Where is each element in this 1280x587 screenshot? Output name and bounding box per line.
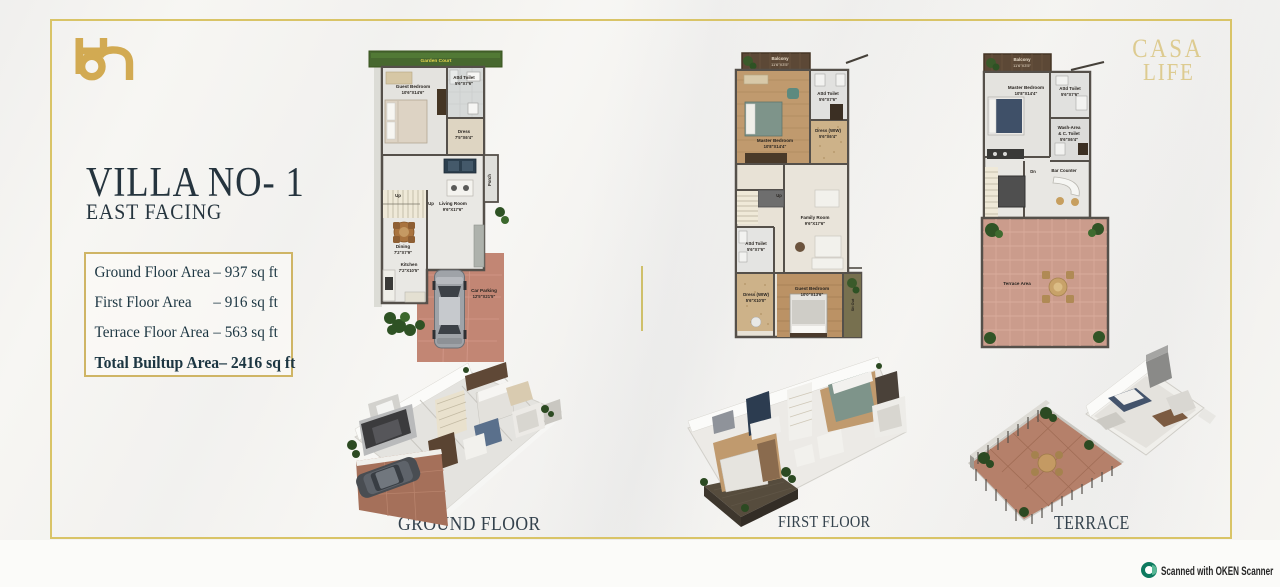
svg-text:Up: Up: [776, 193, 782, 198]
svg-text:Wash-Area: Wash-Area: [1058, 125, 1081, 130]
svg-text:12'5"X21'5": 12'5"X21'5": [473, 294, 496, 299]
svg-text:9'6"X17'6": 9'6"X17'6": [805, 221, 825, 226]
svg-text:Car Parking: Car Parking: [471, 288, 497, 293]
svg-text:Guest Bedroom: Guest Bedroom: [795, 286, 829, 291]
svg-text:Dress (WIW): Dress (WIW): [815, 128, 841, 133]
svg-text:7'5"X6'4": 7'5"X6'4": [455, 135, 473, 140]
svg-text:5'6"X6'4": 5'6"X6'4": [1060, 137, 1078, 142]
svg-text:Sit Out: Sit Out: [851, 298, 855, 311]
svg-text:Garden Court: Garden Court: [421, 58, 452, 64]
svg-text:10'8"X14'4": 10'8"X14'4": [764, 144, 787, 149]
svg-text:9'6"X17'6": 9'6"X17'6": [443, 207, 463, 212]
svg-text:Dn: Dn: [1030, 169, 1036, 174]
svg-text:7'2"X7'9": 7'2"X7'9": [394, 250, 412, 255]
svg-text:Master Bedroom: Master Bedroom: [1008, 85, 1044, 90]
svg-text:Attd Toilet: Attd Toilet: [453, 75, 475, 80]
svg-text:7'2"X10'5": 7'2"X10'5": [399, 268, 419, 273]
svg-text:Attd Toilet: Attd Toilet: [817, 91, 839, 96]
svg-text:10'6"X14'6": 10'6"X14'6": [402, 90, 425, 95]
svg-text:Balcony: Balcony: [1013, 57, 1031, 62]
svg-text:Terrace Area: Terrace Area: [1003, 281, 1031, 286]
svg-text:5'6"X7'6": 5'6"X7'6": [819, 97, 837, 102]
svg-text:Bar Counter: Bar Counter: [1051, 168, 1077, 173]
svg-text:Dress: Dress: [458, 129, 471, 134]
svg-text:5'6"X7'6": 5'6"X7'6": [1061, 92, 1079, 97]
svg-text:Family Room: Family Room: [801, 215, 830, 220]
svg-text:Living Room: Living Room: [439, 201, 467, 206]
svg-text:Dining: Dining: [396, 244, 410, 249]
svg-text:11'6"X3'5": 11'6"X3'5": [1013, 63, 1031, 68]
svg-text:Dress (WIW): Dress (WIW): [743, 292, 769, 297]
svg-text:5'6"X7'6": 5'6"X7'6": [747, 247, 765, 252]
svg-text:10'0"X13'6": 10'0"X13'6": [801, 292, 824, 297]
svg-text:& C. Toilet: & C. Toilet: [1058, 131, 1080, 136]
svg-text:Balcony: Balcony: [771, 56, 789, 61]
svg-text:Attd Toilet: Attd Toilet: [745, 241, 767, 246]
svg-text:5'6"X10'0": 5'6"X10'0": [746, 298, 766, 303]
svg-text:Porch: Porch: [487, 174, 492, 186]
svg-text:5'6"X7'6": 5'6"X7'6": [455, 81, 473, 86]
svg-text:Up: Up: [428, 201, 434, 206]
svg-text:Up: Up: [395, 193, 401, 198]
svg-text:Kitchen: Kitchen: [401, 262, 418, 267]
svg-text:5'6"X6'4": 5'6"X6'4": [819, 134, 837, 139]
svg-text:Attd Toilet: Attd Toilet: [1059, 86, 1081, 91]
svg-text:10'8"X14'4": 10'8"X14'4": [1015, 91, 1038, 96]
svg-text:Master Bedroom: Master Bedroom: [757, 138, 793, 143]
svg-text:11'6"X3'5": 11'6"X3'5": [771, 62, 789, 67]
svg-text:Guest Bedroom: Guest Bedroom: [396, 84, 430, 89]
